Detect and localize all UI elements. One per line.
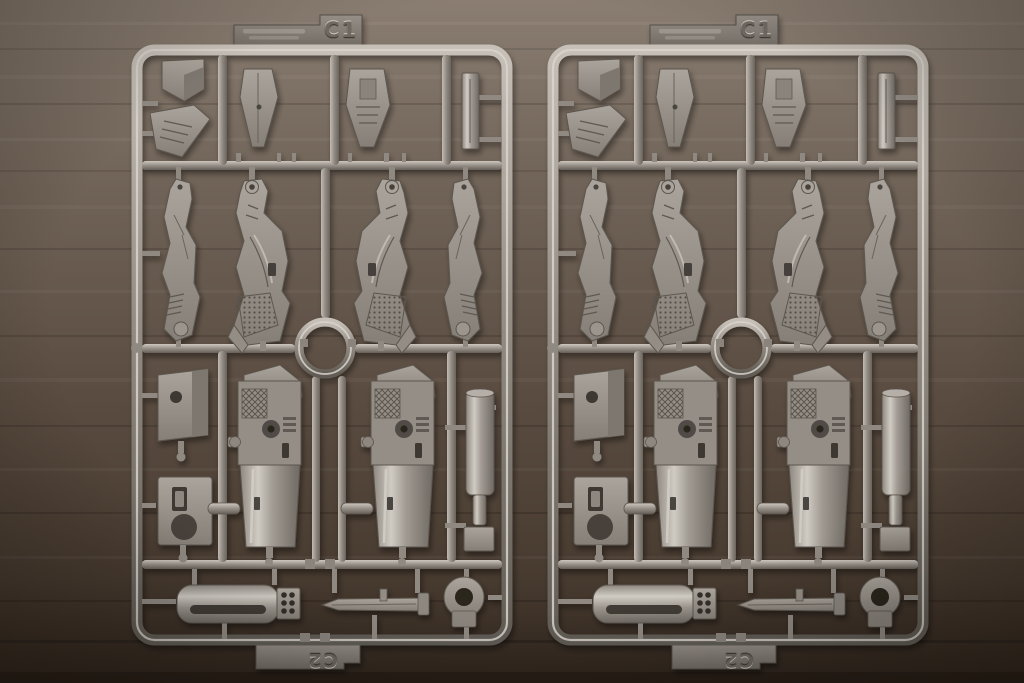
sprue-right-bottom-code: C2 [722,649,753,671]
sprue-left-top-code: C1 [324,18,358,42]
sprue-right-top-code: C1 [740,18,774,42]
scene-canvas: C1 C1 C2 C2 [0,0,1024,683]
sprue-left-bottom-code: C2 [306,649,337,671]
photo-of-model-kit-sprues: C1 C1 C2 C2 [0,0,1024,683]
